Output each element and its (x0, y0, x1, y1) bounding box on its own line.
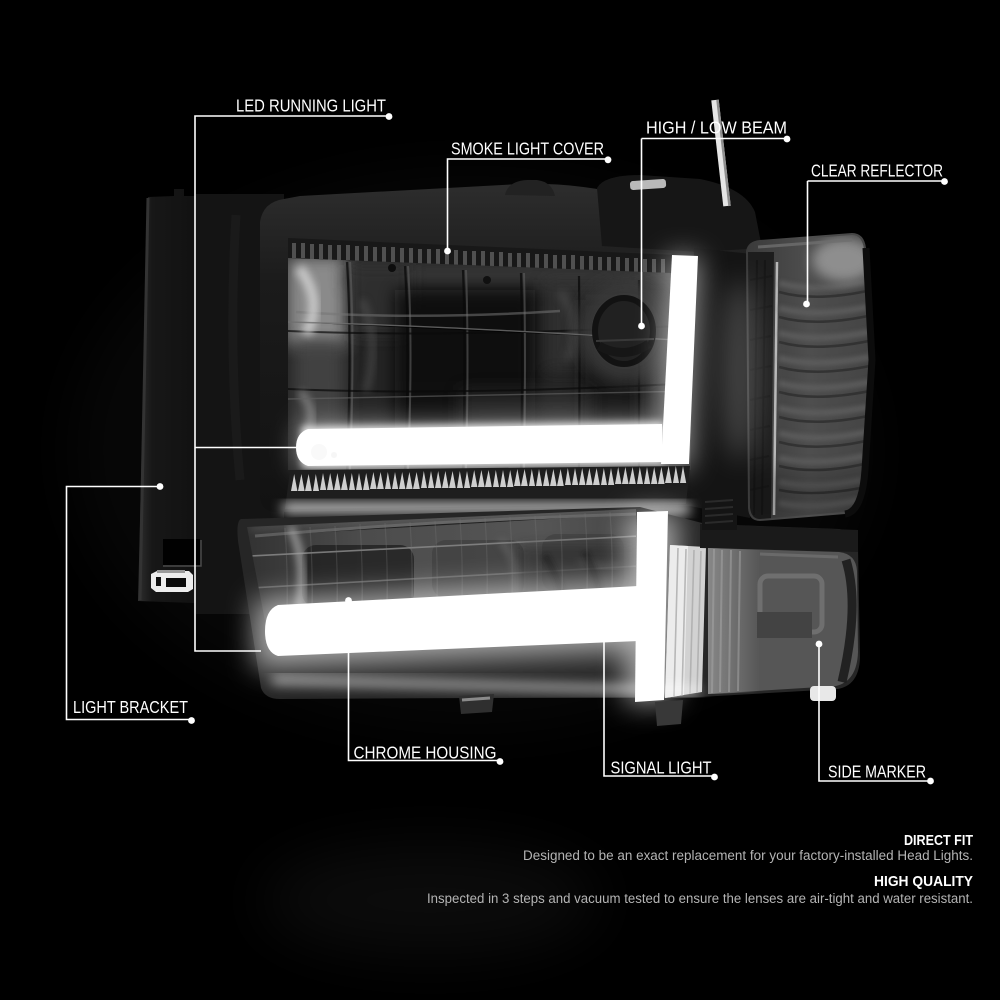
svg-text:LIGHT BRACKET: LIGHT BRACKET (73, 697, 188, 717)
svg-text:HIGH QUALITY: HIGH QUALITY (874, 873, 973, 890)
svg-text:HIGH / LOW BEAM: HIGH / LOW BEAM (646, 118, 787, 138)
svg-text:SMOKE LIGHT COVER: SMOKE LIGHT COVER (451, 139, 604, 159)
svg-text:CHROME HOUSING: CHROME HOUSING (354, 743, 497, 763)
svg-text:CLEAR REFLECTOR: CLEAR REFLECTOR (811, 161, 943, 181)
svg-text:SIGNAL LIGHT: SIGNAL LIGHT (611, 758, 712, 778)
svg-text:DIRECT FIT: DIRECT FIT (904, 832, 973, 849)
svg-text:LED RUNNING LIGHT: LED RUNNING LIGHT (236, 96, 386, 116)
svg-text:Designed to be an exact replac: Designed to be an exact replacement for … (523, 848, 973, 863)
svg-text:Inspected in 3 steps and vacuu: Inspected in 3 steps and vacuum tested t… (427, 891, 973, 906)
svg-text:SIDE MARKER: SIDE MARKER (828, 762, 926, 782)
